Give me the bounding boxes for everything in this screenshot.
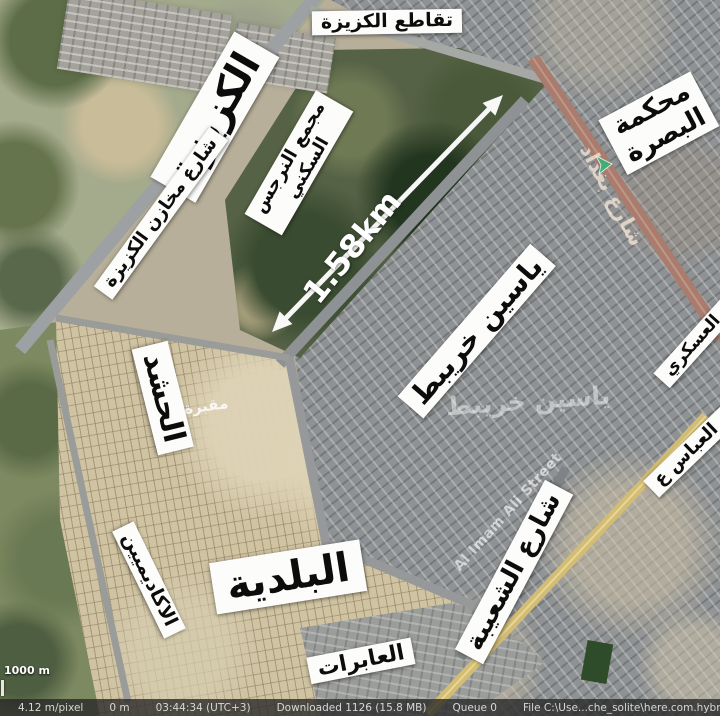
status-file-path: File C:\Use...che_solite\here.com.hybrid xyxy=(523,702,720,714)
scale-label: 1000 m xyxy=(4,664,50,677)
scale-bar-tick xyxy=(1,680,4,696)
map-canvas[interactable]: شارع بغداد ياسين خريبط مقبرة Al Imam Ali… xyxy=(0,0,720,716)
status-elevation: 0 m xyxy=(109,702,129,714)
status-bar: 4.12 m/pixel 0 m 03:44:34 (UTC+3) Downlo… xyxy=(0,699,720,716)
map-application-window: شارع بغداد ياسين خريبط مقبرة Al Imam Ali… xyxy=(0,0,720,716)
status-queue: Queue 0 xyxy=(452,702,497,714)
status-downloaded: Downloaded 1126 (15.8 MB) xyxy=(277,702,427,714)
label-kzeiza-intersection: تقاطع الكزيزة xyxy=(312,9,463,35)
status-time: 03:44:34 (UTC+3) xyxy=(156,702,251,714)
status-resolution: 4.12 m/pixel xyxy=(18,702,83,714)
